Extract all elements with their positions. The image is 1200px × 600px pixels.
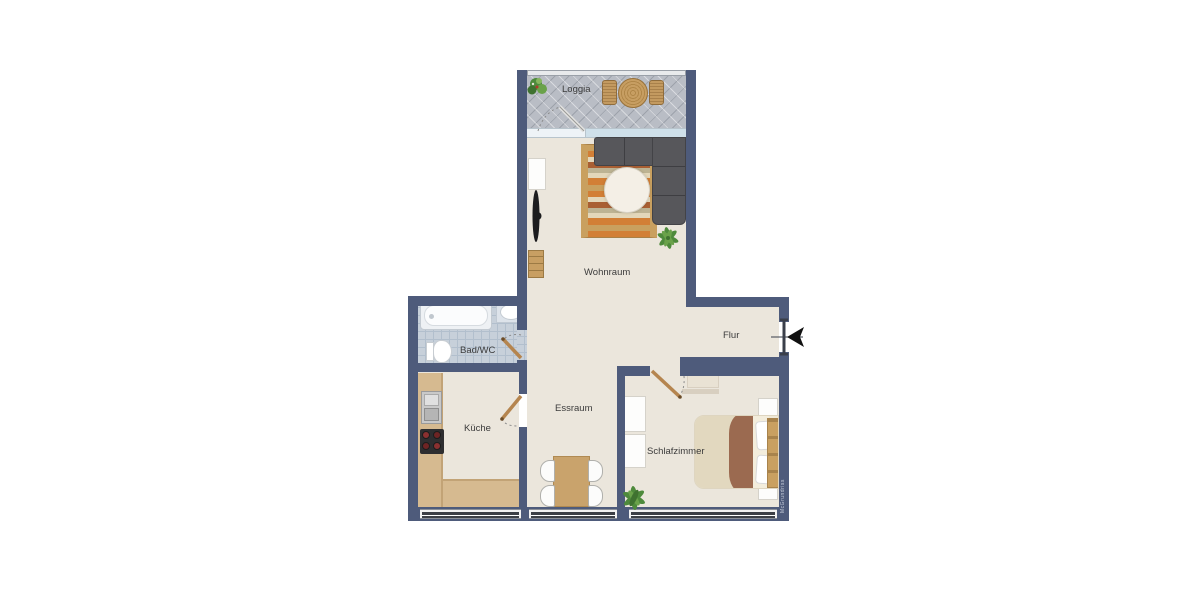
bad-door [501,335,521,359]
room-label-kueche: Küche [464,423,491,434]
room-label-bad: Bad/WC [460,345,495,356]
room-label-loggia: Loggia [562,84,591,95]
watermark: McGrundriss [780,458,789,513]
kueche-door [500,396,521,426]
tv-icon [533,190,542,242]
schlafzimmer-door [652,371,684,399]
room-label-flur: Flur [723,330,739,341]
plan-overlay [0,0,1200,600]
room-label-wohnraum: Wohnraum [584,267,630,278]
room-label-schlafzimmer: Schlafzimmer [647,446,705,457]
schlafzimmer-plant-icon [622,486,647,511]
loggia-door [538,107,584,131]
room-label-essraum: Essraum [555,403,592,414]
loggia-plant-icon [528,78,548,95]
wohnraum-plant-icon [657,227,680,250]
floor-plan-canvas: Loggia Wohnraum Flur Bad/WC Küche Essrau… [0,0,1200,600]
